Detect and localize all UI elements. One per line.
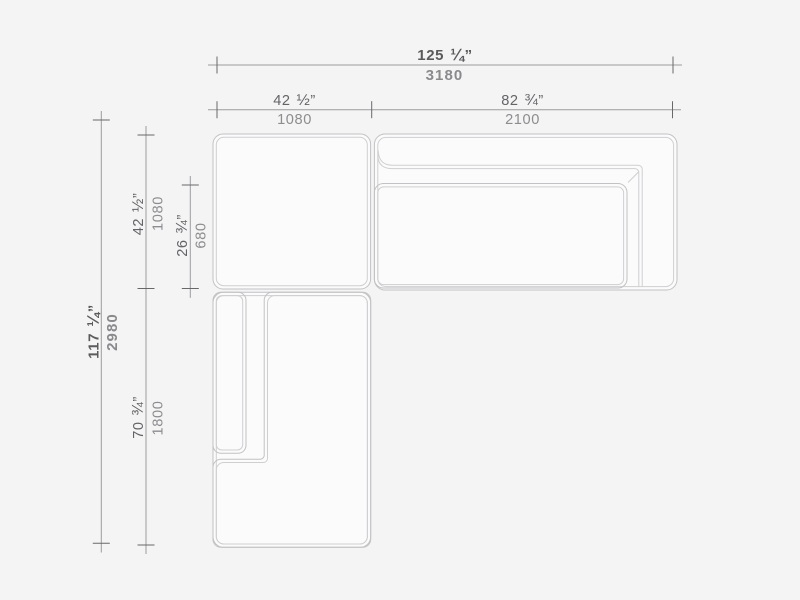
svg-text:680: 680 (194, 222, 210, 248)
svg-text:1080: 1080 (151, 196, 167, 231)
svg-text:117 ¼”: 117 ¼” (85, 304, 103, 359)
svg-text:26 ¾”: 26 ¾” (174, 214, 191, 257)
svg-text:1800: 1800 (151, 401, 167, 436)
svg-text:125 ¼”: 125 ¼” (417, 46, 473, 64)
svg-text:2980: 2980 (104, 313, 121, 351)
svg-text:2100: 2100 (505, 112, 540, 128)
svg-text:82 ¾”: 82 ¾” (501, 92, 544, 109)
svg-text:1080: 1080 (277, 112, 312, 128)
svg-text:3180: 3180 (426, 67, 464, 84)
svg-text:42 ½”: 42 ½” (273, 92, 316, 109)
svg-text:70 ¾”: 70 ¾” (130, 396, 147, 439)
svg-text:42 ½”: 42 ½” (130, 193, 147, 236)
